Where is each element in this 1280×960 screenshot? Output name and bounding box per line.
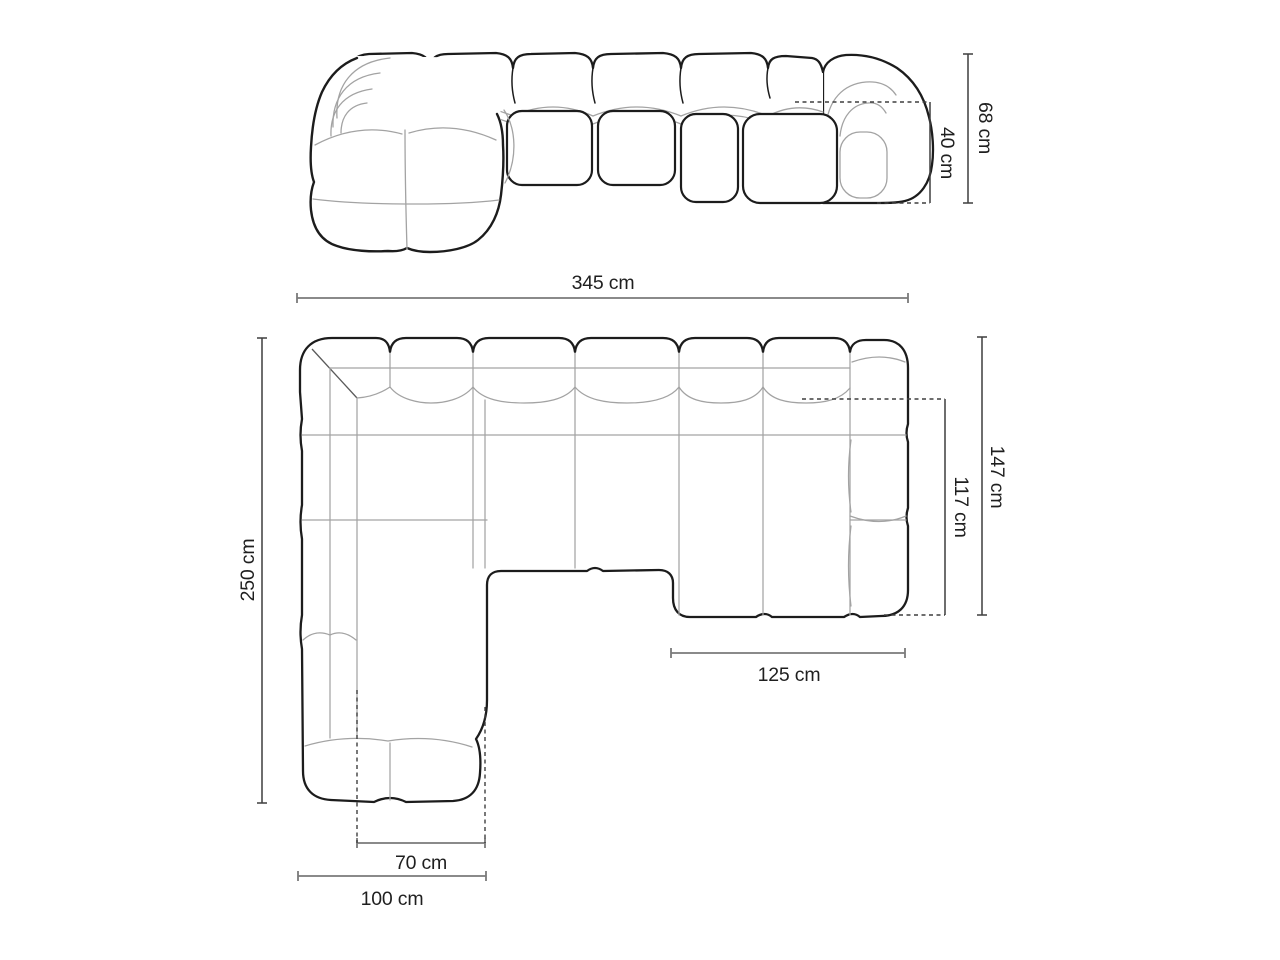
dim-label-right-chaise-depth: 117 cm bbox=[950, 476, 972, 537]
seat-cushion bbox=[743, 114, 837, 203]
seat-cushion bbox=[681, 114, 738, 202]
dim-label-total-height: 68 cm bbox=[974, 102, 996, 154]
dim-label-right-side-depth: 147 cm bbox=[986, 446, 1008, 509]
dim-label-total-width: 345 cm bbox=[572, 272, 635, 294]
dim-line-125 bbox=[671, 648, 905, 658]
sofa-dimension-diagram: 345 cm 68 cm 40 cm 250 cm 147 cm 117 cm … bbox=[0, 0, 1280, 960]
dim-line-147 bbox=[977, 337, 987, 615]
dim-label-right-chaise-width: 125 cm bbox=[758, 664, 821, 686]
diagram-canvas: 345 cm 68 cm 40 cm 250 cm 147 cm 117 cm … bbox=[0, 0, 1280, 960]
dim-line-100 bbox=[298, 871, 486, 881]
plan-view bbox=[300, 338, 908, 802]
dim-label-left-chaise-inner-width: 70 cm bbox=[395, 852, 447, 874]
seat-cushion bbox=[507, 111, 592, 185]
plan-outline bbox=[300, 338, 908, 802]
dim-line-70 bbox=[357, 838, 485, 848]
dim-label-left-chaise-outer-width: 100 cm bbox=[361, 888, 424, 910]
corner-chaise-fill bbox=[311, 56, 503, 250]
armrest-front-bubble bbox=[840, 132, 887, 198]
dim-label-total-depth: 250 cm bbox=[237, 539, 259, 602]
front-elevation-view bbox=[311, 50, 933, 252]
dim-label-seat-height: 40 cm bbox=[936, 127, 958, 179]
seat-cushion bbox=[598, 111, 675, 185]
dim-line-345 bbox=[297, 293, 908, 303]
dim-line-68 bbox=[963, 54, 973, 203]
